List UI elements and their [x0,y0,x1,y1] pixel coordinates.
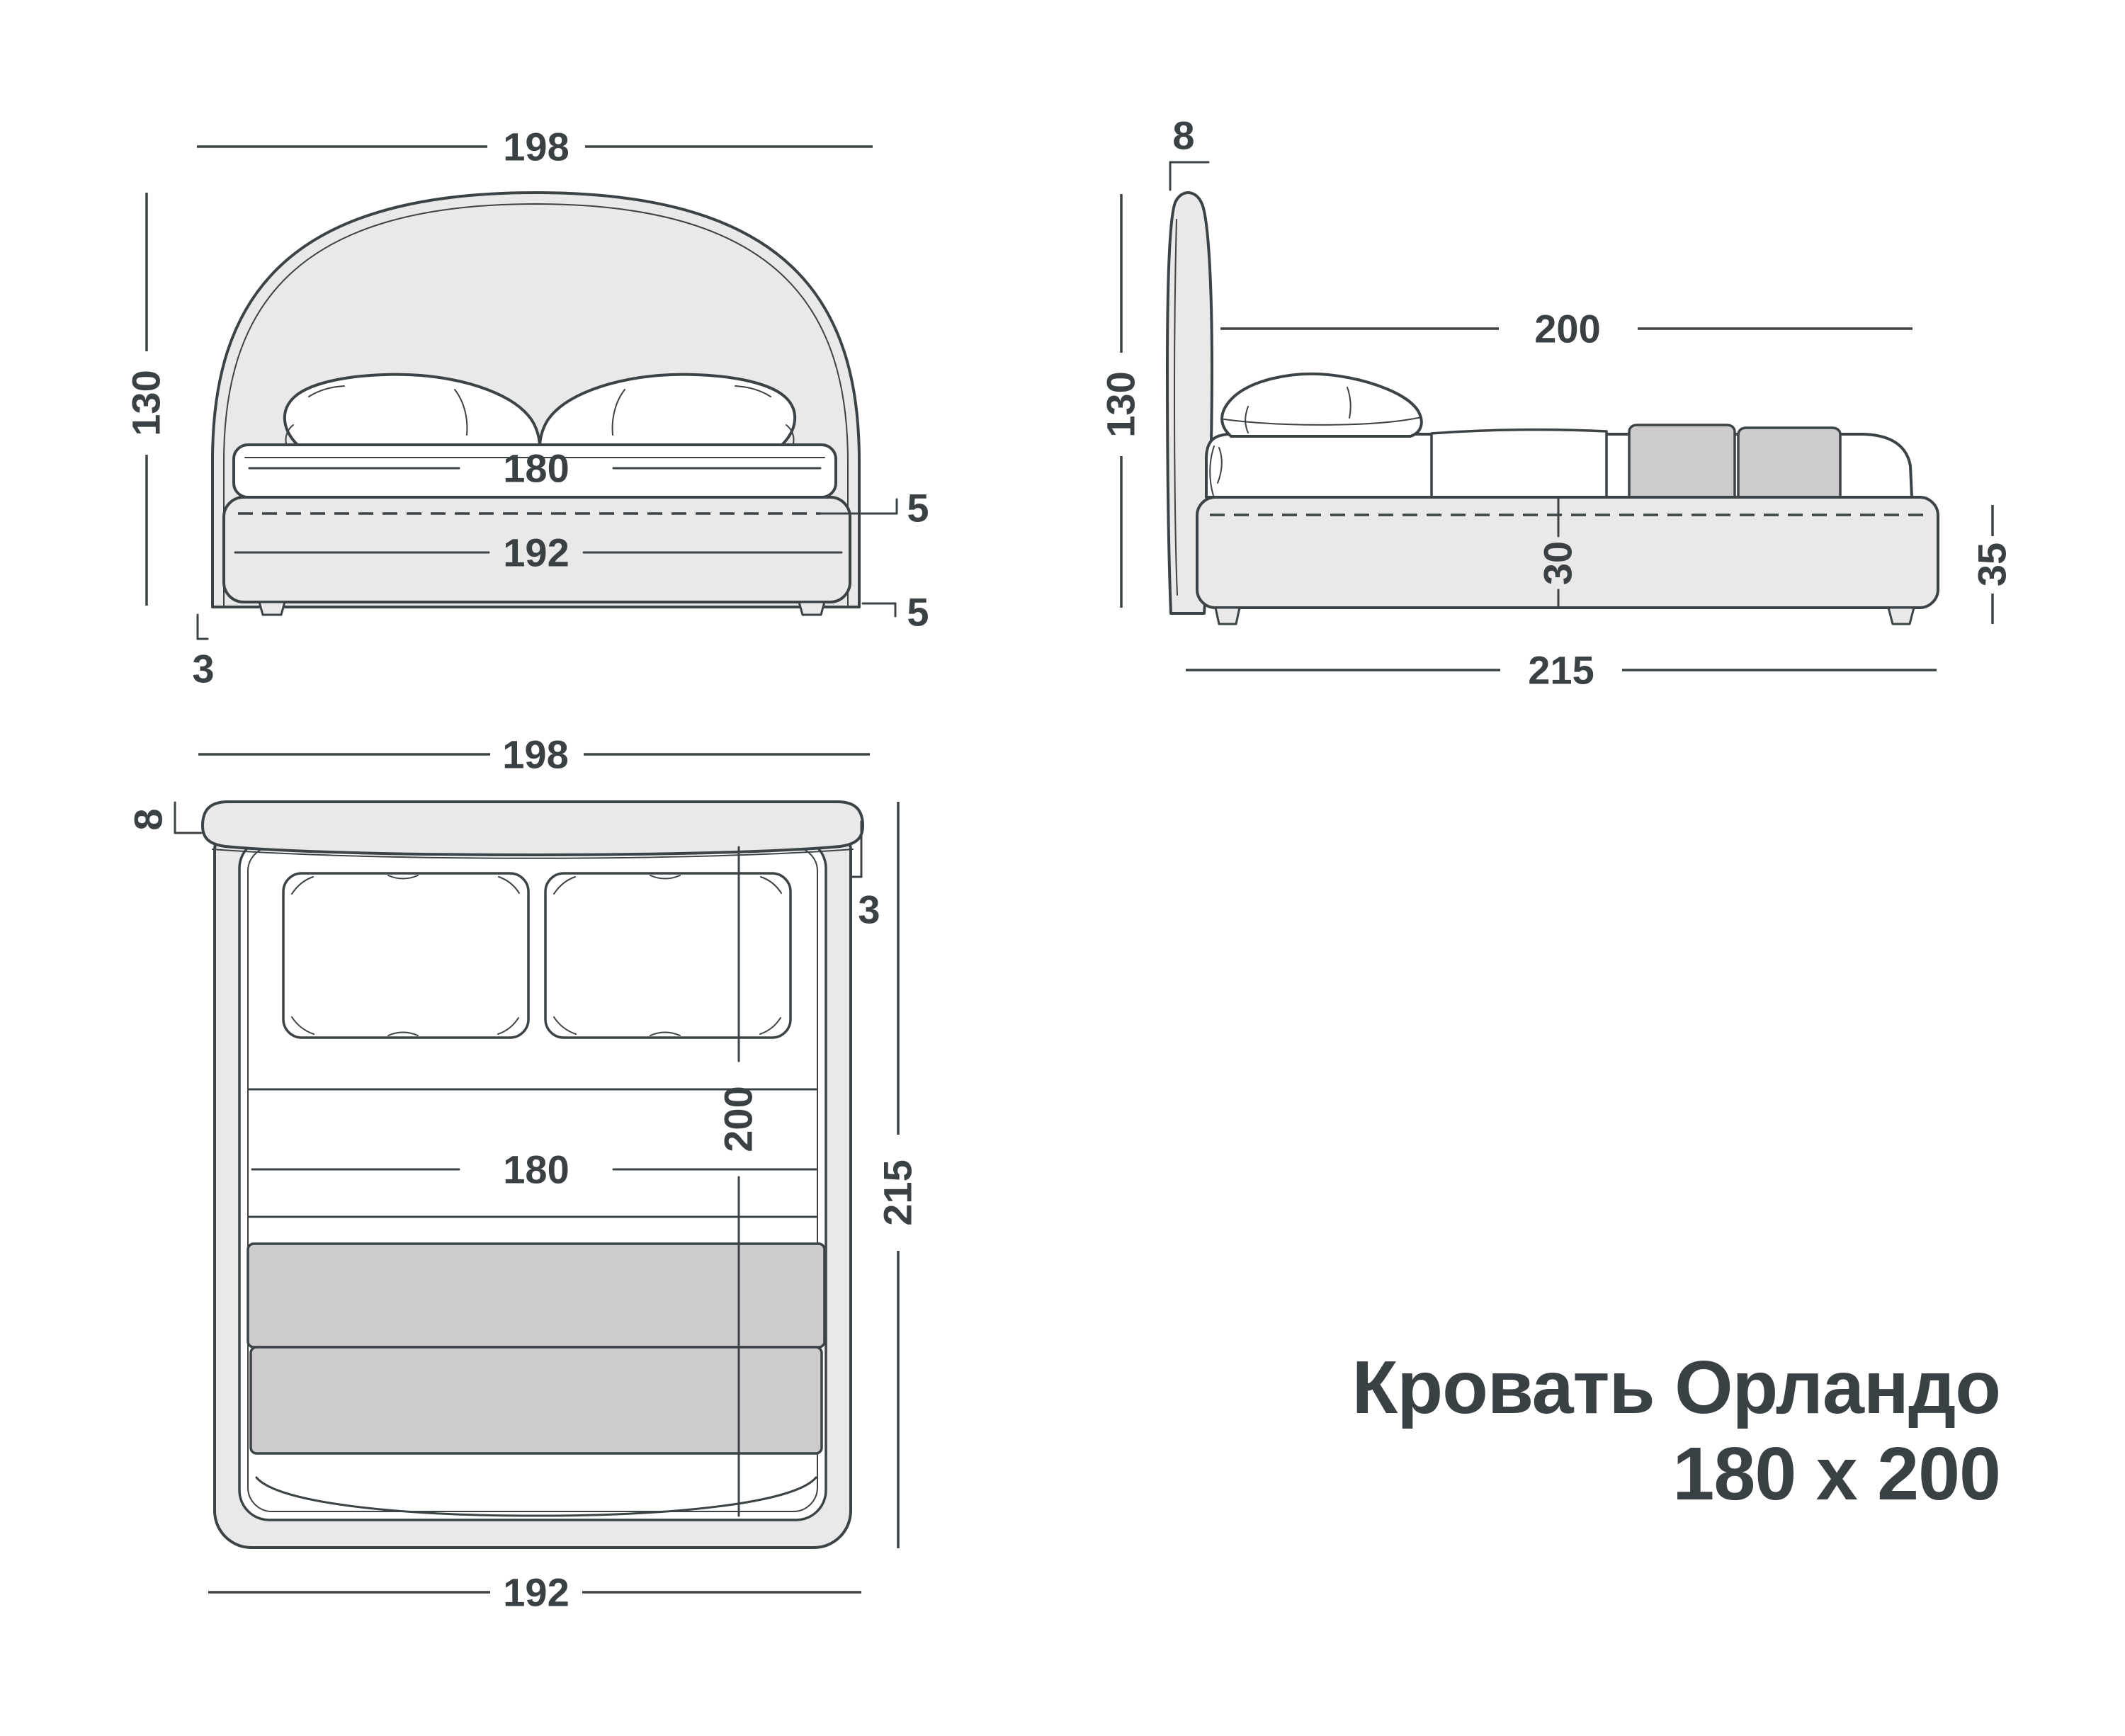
top-dim-mattress-width-label: 180 [503,1147,569,1192]
side-dim-base-with-legs-height-label: 35 [1970,543,2014,586]
side-dim-base-height-label: 30 [1536,541,1580,585]
top-dim-headboard-thickness-label: 8 [126,808,171,830]
front-dim-mattress-width-label: 180 [503,446,569,491]
top-dim-overall-width-label: 198 [502,732,568,777]
front-dim-overall-width: 198 [197,125,873,169]
top-dim-base-width-label: 192 [503,1570,569,1615]
front-dim-headboard-floor-gap: 3 [192,615,214,691]
side-dim-overall-height: 130 [1099,194,1143,608]
top-dim-sleeping-length-label: 200 [716,1086,761,1152]
top-dim-base-width: 192 [208,1570,861,1615]
side-dim-overall-height-label: 130 [1099,371,1143,437]
side-leg-right [1888,608,1914,624]
front-dim-mattress-overlap-label: 5 [907,486,929,531]
top-dim-overall-length: 215 [875,802,920,1548]
front-dim-overall-width-label: 198 [503,125,569,169]
front-dim-overall-height-label: 130 [124,370,169,436]
front-dim-headboard-floor-gap-label: 3 [192,647,214,691]
title-line2: 180 x 200 [1352,1431,2000,1517]
title-block: Кровать Орландо 180 x 200 [1352,1344,2000,1517]
top-dim-overall-width: 198 [198,732,870,777]
side-leg-left [1215,608,1240,624]
top-headboard [203,802,863,855]
side-dim-headboard-thickness: 8 [1170,113,1208,191]
side-dim-overall-length: 215 [1186,648,1937,693]
side-view: 8 130 200 [1099,113,2014,693]
top-dim-headboard-thickness: 8 [126,802,202,833]
side-dim-overall-length-label: 215 [1528,648,1594,693]
front-dim-overall-height: 130 [124,193,169,606]
top-dim-overall-length-label: 215 [875,1159,920,1225]
top-pillow-left [283,873,528,1038]
front-dim-leg-height: 5 [863,590,929,635]
side-dim-sleeping-length-label: 200 [1534,307,1600,351]
top-blanket-fold-2 [251,1347,822,1453]
side-dim-base-with-legs-height: 35 [1970,505,2014,624]
top-dim-headboard-offset-label: 3 [858,887,880,932]
top-pillow-right [545,873,790,1038]
side-dim-sleeping-length: 200 [1220,307,1912,351]
front-view: 198 130 180 [124,125,929,691]
title-line1: Кровать Орландо [1352,1344,2000,1431]
side-dim-headboard-thickness-label: 8 [1172,113,1194,158]
side-sheet-fold [1432,430,1606,497]
side-blanket-fold-2 [1738,428,1840,497]
front-dim-leg-height-label: 5 [907,590,929,635]
side-blanket-fold-1 [1629,425,1735,497]
top-view: 198 8 3 [126,732,920,1615]
front-dim-base-width-label: 192 [503,531,569,575]
side-pillow [1222,374,1422,436]
front-leg-left [259,602,285,615]
front-leg-right [799,602,824,615]
